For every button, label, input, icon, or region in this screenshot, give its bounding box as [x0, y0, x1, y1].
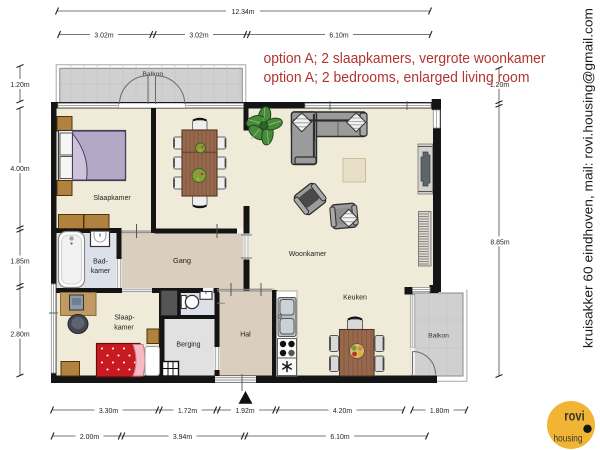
svg-text:3.02m: 3.02m [189, 32, 208, 39]
svg-text:Bad-: Bad- [93, 259, 108, 266]
svg-text:kamer: kamer [91, 268, 111, 275]
svg-text:option A; 2 bedrooms, enlarged: option A; 2 bedrooms, enlarged living ro… [264, 69, 530, 86]
svg-text:6.10m: 6.10m [329, 32, 348, 39]
svg-text:Keuken: Keuken [343, 295, 367, 302]
svg-text:rovi: rovi [564, 409, 585, 424]
svg-text:1.80m: 1.80m [430, 408, 449, 415]
svg-text:3.94m: 3.94m [173, 434, 192, 441]
svg-text:Balkon: Balkon [428, 333, 449, 340]
svg-text:kruisakker 60 eindhoven, mail:: kruisakker 60 eindhoven, mail: rovi.hous… [581, 8, 596, 348]
svg-text:1.72m: 1.72m [178, 408, 197, 415]
svg-text:4.20m: 4.20m [333, 408, 352, 415]
svg-text:6.10m: 6.10m [330, 434, 349, 441]
svg-text:8.85m: 8.85m [490, 239, 509, 246]
svg-text:Berging: Berging [176, 342, 200, 349]
svg-text:3.02m: 3.02m [94, 32, 113, 39]
svg-text:housing: housing [554, 433, 583, 445]
svg-text:12.34m: 12.34m [232, 9, 255, 16]
svg-text:Balkon: Balkon [142, 71, 163, 78]
svg-text:kamer: kamer [114, 325, 134, 332]
svg-text:1.20m: 1.20m [10, 82, 29, 89]
svg-text:Slaapkamer: Slaapkamer [93, 195, 131, 202]
svg-text:option A; 2 slaapkamers, vergr: option A; 2 slaapkamers, vergrote woonka… [264, 50, 546, 67]
svg-text:Gang: Gang [173, 256, 191, 265]
svg-text:1.92m: 1.92m [235, 408, 254, 415]
svg-text:4.00m: 4.00m [10, 166, 29, 173]
svg-text:3.30m: 3.30m [99, 408, 118, 415]
svg-text:Hal: Hal [240, 331, 251, 338]
svg-text:2.80m: 2.80m [10, 331, 29, 338]
svg-text:1.85m: 1.85m [10, 258, 29, 265]
svg-text:2.00m: 2.00m [80, 434, 99, 441]
svg-text:Woonkamer: Woonkamer [289, 251, 327, 258]
svg-text:Slaap-: Slaap- [114, 315, 135, 322]
